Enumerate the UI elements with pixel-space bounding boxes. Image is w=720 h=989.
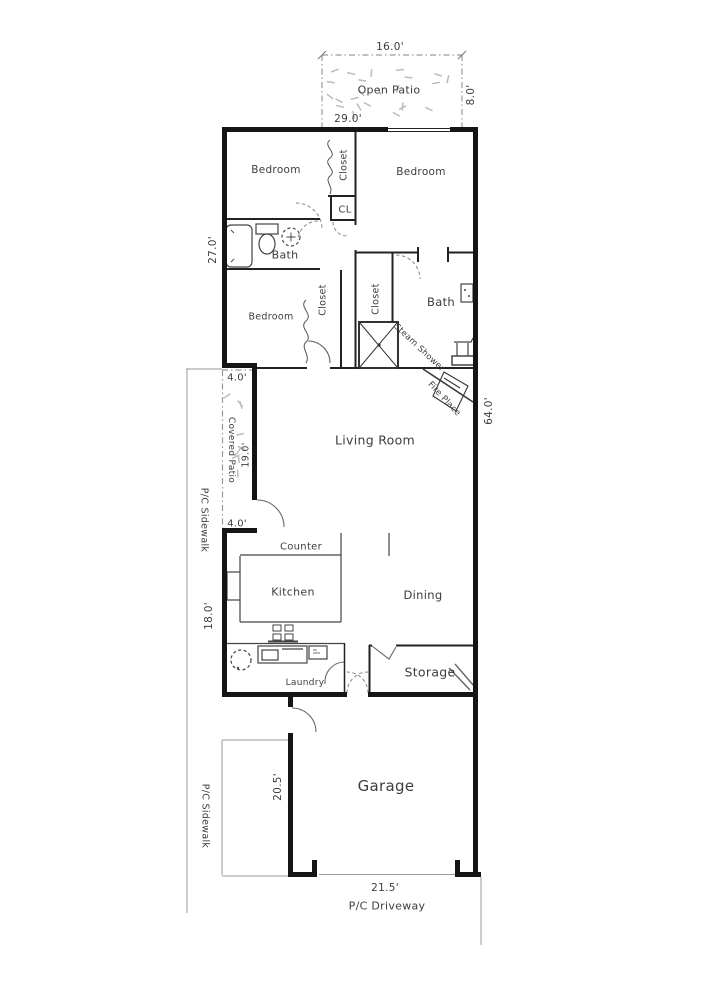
grass-tick <box>447 75 449 83</box>
dimension-garage-depth: 20.5' <box>272 773 284 801</box>
room-label-covered-patio: Covered Patio <box>226 417 236 483</box>
room-label-bedroom-top-right: Bedroom <box>396 166 446 178</box>
grass-tick <box>364 103 371 107</box>
laundry-tub <box>309 646 327 659</box>
closet-door-squiggles <box>304 140 333 363</box>
room-label-bedroom-mid: Bedroom <box>248 312 293 323</box>
room-label-laundry: Laundry <box>286 678 325 688</box>
dimension-covered-patio-width-top: 4.0' <box>227 373 247 384</box>
dimension-kitchen-depth: 18.0' <box>203 602 215 630</box>
room-label-cl: CL <box>338 205 351 216</box>
stove-burners <box>268 625 298 642</box>
grass-tick <box>327 94 333 99</box>
grass-tick <box>402 103 403 111</box>
grass-tick <box>236 433 244 435</box>
grass-tick <box>347 73 355 75</box>
refrigerator <box>227 572 240 600</box>
dashed-door-arcs <box>296 203 420 693</box>
floor-plan: 16.0' Open Patio 8.0' 29.0' Bedroom Clos… <box>0 0 720 989</box>
exterior-walls <box>222 127 481 877</box>
bath-sink-right <box>461 284 473 302</box>
grass-tick <box>396 69 404 70</box>
label-counter: Counter <box>280 542 322 553</box>
bath-left-door-arc <box>298 221 318 240</box>
patio-door-arc <box>257 500 284 527</box>
grass-tick <box>336 105 344 107</box>
closet-mid-door <box>304 300 309 363</box>
sink-basin <box>262 650 278 660</box>
grass-tick <box>331 69 339 72</box>
grass-tick <box>434 74 442 76</box>
garage-entry-door-arc <box>292 708 316 732</box>
room-label-closet-top: Closet <box>339 149 350 180</box>
dimension-wing-depth: 27.0' <box>207 236 219 264</box>
bathtub <box>226 225 252 267</box>
toilet-right-tank <box>454 338 473 356</box>
room-label-closet-mid-right: Closet <box>371 283 382 314</box>
label-sidewalk-upper: P/C Sidewalk <box>199 488 210 552</box>
patio-sliding-door <box>388 129 450 132</box>
room-label-storage: Storage <box>404 665 455 680</box>
closet-rod-jambs <box>418 247 448 262</box>
dimension-open-patio-width: 16.0' <box>376 41 404 53</box>
toilet-tank <box>256 224 278 234</box>
grass-tick <box>371 69 372 77</box>
garage-door-jambs <box>315 860 458 872</box>
sidewalk-garage-edge <box>222 740 290 876</box>
room-label-bath-right: Bath <box>427 295 455 309</box>
hall-exit-door-arc <box>308 341 330 363</box>
dimension-house-width: 29.0' <box>334 113 362 125</box>
grass-tick <box>405 77 413 78</box>
dimension-covered-patio-length: 19.0' <box>241 442 252 467</box>
back-door-arcs <box>347 672 368 693</box>
dimension-house-depth: 64.0' <box>483 397 495 425</box>
right-bath-fixtures <box>452 284 474 365</box>
floor-plan-linework <box>0 0 720 989</box>
room-label-bedroom-top-left: Bedroom <box>251 164 301 176</box>
grass-tick <box>336 99 343 103</box>
grass-tick <box>432 82 440 83</box>
dimension-open-patio-depth: 8.0' <box>465 85 477 106</box>
room-label-dining: Dining <box>404 588 443 602</box>
dimension-covered-patio-width-bottom: 4.0' <box>227 519 247 530</box>
closet-top-door <box>328 140 333 194</box>
grass-tick <box>351 97 359 99</box>
cl-door-arc <box>333 222 347 236</box>
label-driveway: P/C Driveway <box>349 900 426 913</box>
grass-tick <box>393 112 400 116</box>
grass-tick <box>357 104 361 111</box>
room-label-kitchen: Kitchen <box>271 586 314 599</box>
label-sidewalk-lower: P/C Sidewalk <box>200 784 211 848</box>
room-label-living-room: Living Room <box>335 433 415 448</box>
room-label-open-patio: Open Patio <box>358 84 421 97</box>
room-label-bath-left: Bath <box>272 249 299 262</box>
dimension-garage-width: 21.5' <box>371 882 399 894</box>
room-label-garage: Garage <box>358 777 415 795</box>
laundry-door-arc <box>325 662 344 684</box>
bedroom-tl-door-arc <box>296 203 322 229</box>
storage-door-leaf <box>372 646 396 659</box>
grass-tick <box>327 82 335 83</box>
grass-tick <box>425 107 432 111</box>
washer <box>231 650 251 670</box>
room-label-closet-mid-left: Closet <box>318 284 329 315</box>
toilet-right-base <box>452 356 474 365</box>
grass-tick <box>358 80 366 81</box>
bath-right-door-arc <box>396 255 420 279</box>
grass-tick <box>224 394 231 398</box>
kitchen-fixtures <box>227 533 389 670</box>
